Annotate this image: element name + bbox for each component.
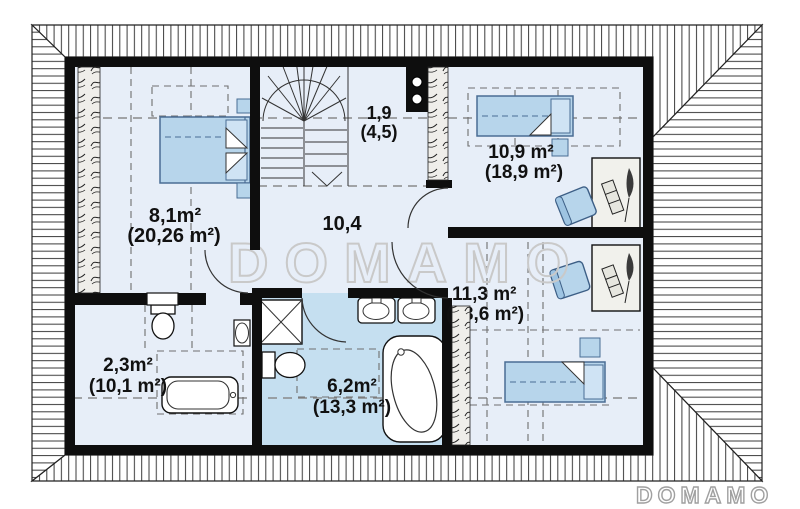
nightstand (580, 338, 600, 357)
door-leaf-small-bath (147, 293, 178, 305)
label-bedroom-tr-area: 10,9 m² (488, 142, 553, 163)
wall-outer-top (65, 57, 653, 67)
oval-bathtub (383, 336, 446, 442)
chimney-stack (406, 57, 428, 112)
corner-shower (260, 300, 302, 344)
label-bath-small-total: (10,1 m²) (89, 376, 167, 397)
wall-insulation-cap (426, 180, 452, 188)
toilet (262, 352, 305, 378)
desk-top-right (592, 158, 640, 228)
single-bed-top (477, 96, 573, 136)
toilet (151, 305, 175, 339)
label-hall-area: 10,4 (323, 213, 363, 235)
wall-between-right-bedrooms (448, 227, 653, 238)
insulation-strip-bath-bedroom (452, 306, 470, 445)
label-landing-area: 1,9 (366, 103, 391, 123)
pillow (584, 365, 603, 399)
wall-outer-right (643, 57, 653, 455)
roof-slope-left (32, 25, 65, 481)
label-bedroom-left-total: (20,26 m²) (127, 225, 220, 247)
brand-logo-text: DOMAMO (636, 482, 773, 508)
insulation-strip-left (78, 67, 100, 293)
wall-stairs-left (250, 57, 260, 250)
wall-bedroom-bottom-b (178, 293, 206, 305)
insulation-strip-landing (428, 67, 448, 180)
label-bedroom-tr-total: (18,9 m²) (485, 162, 563, 183)
wall-bedroom-bottom-a (65, 293, 147, 305)
floor-plan-drawing: DOMAMO 8,1m² (20,26 m²) 10,4 (0, 0, 800, 509)
wall-outer-bottom (65, 445, 653, 455)
nightstand (552, 139, 568, 156)
desk-bottom-right (592, 245, 640, 311)
wall-bath-left (252, 288, 262, 455)
washbasin-small (234, 320, 250, 346)
label-bedroom-left-area: 8,1m² (149, 205, 202, 227)
washbasin (358, 298, 395, 323)
pillow (551, 99, 570, 133)
bathtub (162, 377, 238, 413)
wall-outer-left (65, 57, 75, 455)
bath-faucet (398, 349, 404, 355)
label-landing-total: (4,5) (360, 122, 397, 142)
watermark-text: DOMAMO (228, 231, 585, 294)
single-bed-bottom (505, 362, 605, 402)
label-bath-main-area: 6,2m² (327, 376, 377, 397)
label-bedroom-br-area: 11,3 m² (452, 284, 516, 305)
double-bed (160, 117, 250, 183)
label-bath-small-area: 2,3m² (103, 355, 153, 376)
washbasin (398, 298, 435, 323)
nightstand (237, 183, 252, 198)
nightstand (237, 99, 252, 113)
label-bath-main-total: (13,3 m²) (313, 397, 391, 418)
floor-plan-page: DOMAMO 8,1m² (20,26 m²) 10,4 (0, 0, 800, 509)
bath-faucet (230, 392, 235, 397)
